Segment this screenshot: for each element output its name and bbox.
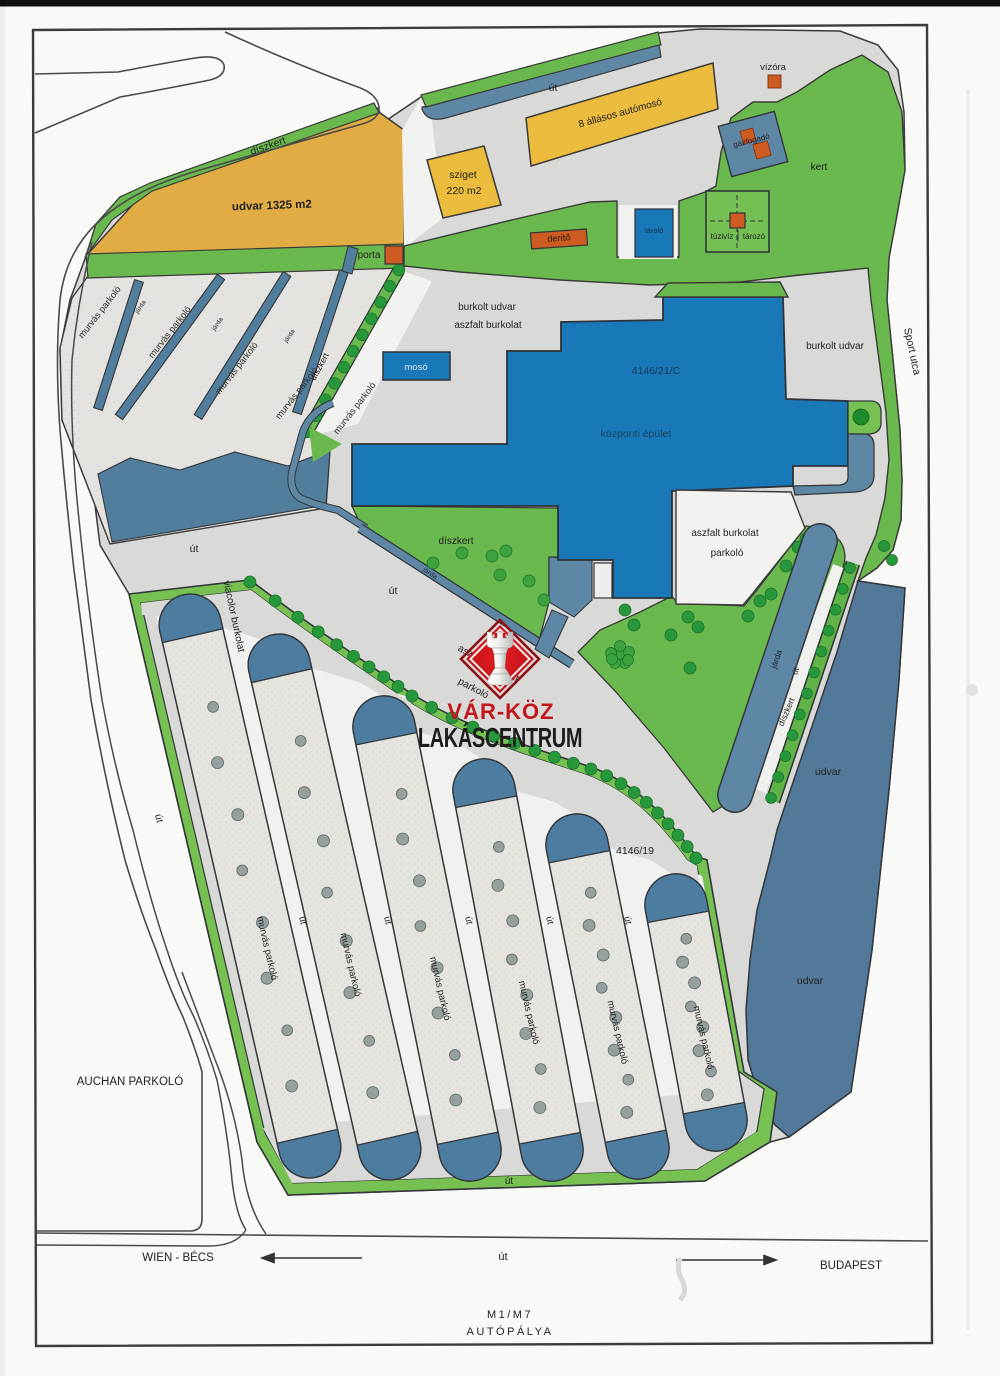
svg-text:központi épület: központi épület xyxy=(601,428,672,440)
svg-text:mosó: mosó xyxy=(404,362,427,373)
svg-text:parkoló: parkoló xyxy=(711,548,744,559)
svg-text:tároló: tároló xyxy=(645,226,664,235)
svg-text:aszfalt burkolat: aszfalt burkolat xyxy=(454,320,521,331)
svg-text:M1/M7: M1/M7 xyxy=(487,1309,533,1321)
svg-text:út: út xyxy=(549,82,558,94)
svg-text:udvar: udvar xyxy=(815,766,842,778)
svg-text:burkolt udvar: burkolt udvar xyxy=(806,341,864,352)
svg-text:VÁR-KÖZ: VÁR-KÖZ xyxy=(447,699,554,724)
svg-text:díszkert: díszkert xyxy=(438,536,473,547)
svg-text:út: út xyxy=(498,1251,507,1263)
svg-text:LAKÁSCENTRUM: LAKÁSCENTRUM xyxy=(418,722,582,754)
svg-text:AUTÓPÁLYA: AUTÓPÁLYA xyxy=(467,1325,554,1338)
svg-text:tározó: tározó xyxy=(743,232,766,241)
svg-text:porta: porta xyxy=(358,250,381,261)
svg-text:WIEN - BÉCS: WIEN - BÉCS xyxy=(142,1251,214,1264)
svg-text:sziget: sziget xyxy=(449,169,477,181)
svg-text:AUCHAN PARKOLÓ: AUCHAN PARKOLÓ xyxy=(77,1075,184,1088)
svg-text:út: út xyxy=(505,1176,514,1187)
svg-text:vízóra: vízóra xyxy=(760,62,787,73)
svg-text:4146/21/C: 4146/21/C xyxy=(632,365,681,377)
svg-text:BUDAPEST: BUDAPEST xyxy=(820,1260,882,1272)
svg-text:udvar: udvar xyxy=(797,975,824,987)
svg-text:aszfalt burkolat: aszfalt burkolat xyxy=(691,528,758,539)
svg-text:4146/19: 4146/19 xyxy=(616,845,654,857)
svg-text:tüzivíz: tüzivíz xyxy=(711,232,734,241)
svg-text:derítő: derítő xyxy=(547,232,571,244)
svg-text:burkolt udvar: burkolt udvar xyxy=(458,302,516,313)
svg-text:út: út xyxy=(190,543,199,555)
svg-text:220 m2: 220 m2 xyxy=(446,185,481,197)
svg-text:kert: kert xyxy=(811,162,828,173)
svg-text:út: út xyxy=(389,585,398,597)
